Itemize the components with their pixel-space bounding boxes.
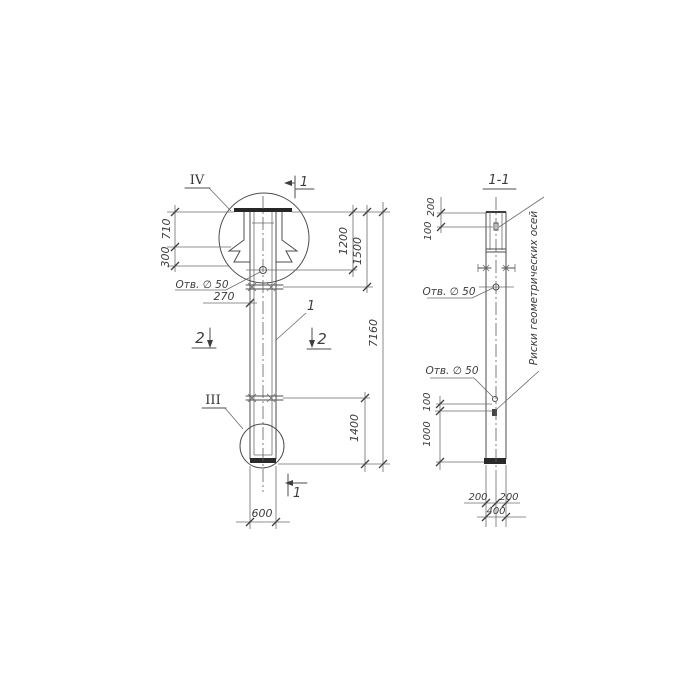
section1-top-label: 1 (300, 175, 308, 190)
axes-note: Риски геометрических осей (528, 211, 540, 366)
dim-600: 600 (252, 507, 273, 520)
section-bottom-end (484, 458, 506, 464)
dim-270: 270 (214, 290, 235, 303)
elevation-dim-texts: 710 300 Отв. ∅ 50 270 1200 1500 7160 140… (159, 219, 380, 521)
elevation-view: IV 1 1 2 2 III (159, 173, 390, 529)
section1-bottom-label: 1 (293, 486, 301, 501)
dim-1400: 1400 (348, 414, 361, 442)
detail-iv-label: IV (190, 173, 205, 188)
elevation-structure (229, 196, 297, 492)
section2-left-label: 2 (195, 329, 205, 347)
dim-300: 300 (159, 247, 172, 268)
elevation-marks: IV 1 1 2 2 III (185, 173, 331, 501)
dim-400: 400 (486, 506, 505, 517)
splice-joint-lower (246, 394, 283, 402)
corbel-right (276, 240, 297, 262)
detail-iii-label: III (205, 393, 220, 408)
dim-200-bottom-right: 200 (499, 492, 518, 503)
technical-drawing: IV 1 1 2 2 III (0, 0, 700, 700)
section-structure (478, 197, 515, 470)
dim-100-top: 100 (423, 221, 434, 240)
splice-joint-upper (246, 283, 283, 291)
hole-callout-upper: Отв. ∅ 50 (422, 286, 475, 298)
drawing-sheet: IV 1 1 2 2 III (0, 0, 700, 700)
dim-7160: 7160 (367, 319, 380, 347)
corbel-left (229, 240, 250, 262)
dim-200-top: 200 (426, 197, 437, 216)
dim-100-mid: 100 (422, 392, 433, 411)
part-1-label: 1 (307, 299, 315, 314)
hole-lower (493, 397, 498, 402)
dim-200-bottom-left: 200 (468, 492, 487, 503)
section-splice-marks (478, 264, 515, 272)
detail-circle-iv (219, 193, 309, 283)
section-view: 1-1 (422, 173, 544, 527)
dim-1000: 1000 (422, 421, 433, 446)
dim-1200: 1200 (337, 227, 350, 255)
section-title: 1-1 (488, 173, 509, 188)
section2-right-label: 2 (317, 330, 327, 348)
dim-710: 710 (160, 219, 173, 240)
hole-callout-lower: Отв. ∅ 50 (425, 365, 478, 377)
dim-1500: 1500 (351, 237, 364, 265)
